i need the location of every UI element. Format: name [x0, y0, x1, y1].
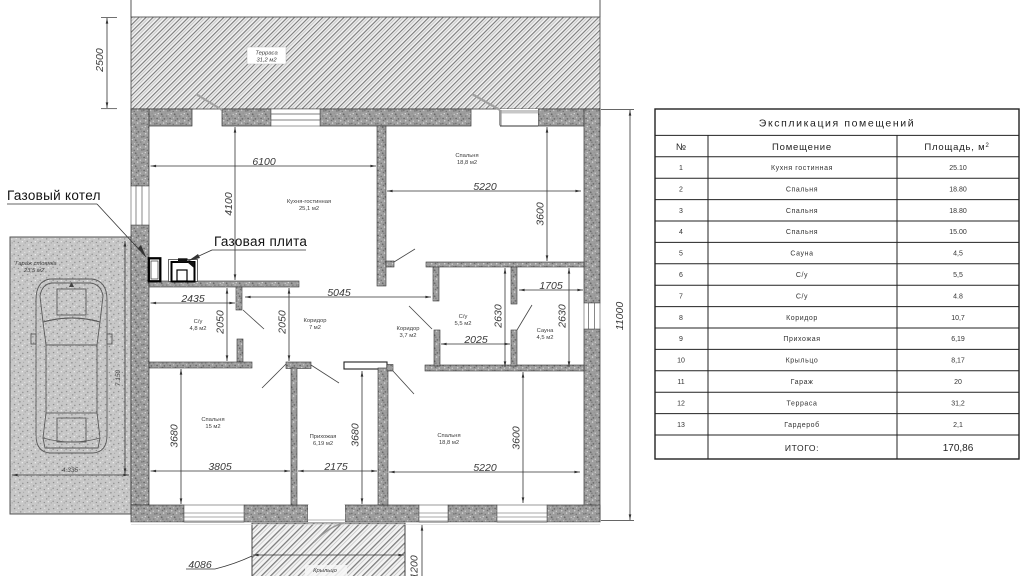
- svg-text:6,19: 6,19: [951, 336, 965, 343]
- svg-text:3: 3: [679, 208, 683, 215]
- svg-text:Гараж стоянка: Гараж стоянка: [15, 261, 57, 267]
- svg-text:2175: 2175: [323, 461, 348, 473]
- svg-text:5045: 5045: [327, 287, 351, 299]
- svg-text:3680: 3680: [169, 424, 181, 448]
- svg-text:Кухня гостинная: Кухня гостинная: [771, 165, 833, 172]
- svg-text:4: 4: [679, 229, 683, 236]
- svg-text:Спальня: Спальня: [201, 417, 224, 423]
- svg-text:Спальня: Спальня: [455, 153, 478, 159]
- svg-text:5220: 5220: [473, 181, 497, 193]
- svg-text:С/у: С/у: [194, 319, 203, 325]
- svg-text:1705: 1705: [539, 280, 563, 292]
- svg-text:25,1 м2: 25,1 м2: [299, 206, 319, 212]
- svg-text:Газовый котел: Газовый котел: [7, 188, 101, 203]
- svg-text:7.150: 7.150: [115, 369, 122, 386]
- svg-text:Площадь, м2: Площадь, м2: [924, 142, 989, 153]
- svg-text:6: 6: [679, 272, 683, 279]
- svg-text:4100: 4100: [223, 192, 235, 216]
- svg-text:3600: 3600: [535, 202, 547, 226]
- svg-text:8: 8: [679, 315, 683, 322]
- svg-text:7: 7: [679, 293, 683, 300]
- svg-text:Помещение: Помещение: [772, 142, 832, 153]
- svg-text:3600: 3600: [511, 426, 523, 450]
- svg-text:2435: 2435: [180, 293, 205, 305]
- svg-text:3805: 3805: [208, 461, 232, 473]
- svg-text:Терраса: Терраса: [255, 51, 278, 57]
- svg-text:3,7 м2: 3,7 м2: [400, 333, 417, 339]
- svg-text:12: 12: [677, 400, 685, 407]
- svg-text:Спальня: Спальня: [786, 208, 818, 215]
- svg-text:Газовая плита: Газовая плита: [214, 234, 307, 249]
- svg-text:№: №: [676, 142, 686, 153]
- svg-text:1: 1: [679, 165, 683, 172]
- svg-text:170,86: 170,86: [943, 443, 974, 454]
- svg-text:6,19 м2: 6,19 м2: [313, 441, 333, 447]
- svg-text:Спальня: Спальня: [786, 229, 818, 236]
- svg-text:7 м2: 7 м2: [309, 325, 321, 331]
- svg-text:31,2: 31,2: [951, 400, 965, 407]
- svg-text:31,2 м2: 31,2 м2: [256, 58, 277, 64]
- svg-text:18,8 м2: 18,8 м2: [457, 160, 477, 166]
- svg-text:11000: 11000: [614, 302, 626, 331]
- svg-text:Спальня: Спальня: [437, 433, 460, 439]
- svg-text:3680: 3680: [350, 423, 362, 447]
- svg-text:С/у: С/у: [796, 293, 808, 300]
- svg-text:Гардероб: Гардероб: [784, 421, 820, 429]
- svg-text:4,5: 4,5: [953, 251, 963, 258]
- svg-text:9: 9: [679, 336, 683, 343]
- svg-text:25.10: 25.10: [949, 165, 967, 172]
- svg-text:Крыльцо: Крыльцо: [313, 568, 338, 574]
- svg-text:11: 11: [677, 379, 684, 386]
- svg-text:2,1: 2,1: [953, 422, 963, 429]
- svg-text:2630: 2630: [557, 304, 569, 329]
- svg-text:Сауна: Сауна: [537, 328, 555, 334]
- svg-text:2025: 2025: [463, 334, 488, 346]
- svg-text:Сауна: Сауна: [790, 251, 813, 258]
- svg-text:4,5 м2: 4,5 м2: [537, 335, 554, 341]
- svg-text:10: 10: [677, 358, 685, 365]
- svg-text:23,5 м2: 23,5 м2: [23, 268, 45, 274]
- svg-text:5,5 м2: 5,5 м2: [455, 321, 472, 327]
- svg-text:18.80: 18.80: [949, 208, 967, 215]
- svg-text:Крыльцо: Крыльцо: [786, 358, 819, 365]
- svg-text:2500: 2500: [94, 48, 106, 73]
- svg-text:Прихожая: Прихожая: [310, 434, 337, 440]
- svg-text:Кухня-гостинная: Кухня-гостинная: [287, 199, 331, 205]
- svg-text:18.80: 18.80: [949, 186, 967, 193]
- svg-text:Коридор: Коридор: [786, 315, 818, 322]
- svg-text:Коридор: Коридор: [304, 318, 327, 324]
- svg-text:8,17: 8,17: [951, 358, 965, 365]
- svg-text:Гараж: Гараж: [791, 379, 814, 386]
- svg-text:10,7: 10,7: [951, 315, 965, 322]
- svg-text:2: 2: [679, 186, 683, 193]
- svg-text:5,5: 5,5: [953, 272, 963, 279]
- svg-text:С/у: С/у: [459, 314, 468, 320]
- svg-text:20: 20: [954, 379, 962, 386]
- svg-text:4.8: 4.8: [953, 293, 963, 300]
- svg-text:Прихожая: Прихожая: [783, 336, 820, 343]
- svg-text:13: 13: [677, 422, 685, 429]
- svg-text:18,8 м2: 18,8 м2: [439, 440, 459, 446]
- svg-text:1200: 1200: [409, 555, 421, 576]
- svg-text:ИТОГО:: ИТОГО:: [785, 443, 819, 453]
- svg-text:Терраса: Терраса: [786, 400, 817, 407]
- svg-text:5220: 5220: [473, 462, 497, 474]
- svg-text:4.335: 4.335: [62, 467, 79, 474]
- svg-text:15.00: 15.00: [949, 229, 967, 236]
- svg-text:2630: 2630: [493, 304, 505, 329]
- svg-text:Спальня: Спальня: [786, 186, 818, 193]
- svg-text:6100: 6100: [252, 156, 276, 168]
- svg-text:15 м2: 15 м2: [205, 424, 220, 430]
- svg-text:5: 5: [679, 251, 683, 258]
- svg-text:Коридор: Коридор: [397, 326, 420, 332]
- svg-text:С/у: С/у: [796, 272, 808, 279]
- svg-text:Экспликация помещений: Экспликация помещений: [759, 118, 915, 130]
- svg-text:2050: 2050: [277, 310, 289, 335]
- svg-text:2050: 2050: [215, 310, 227, 335]
- svg-text:4,8 м2: 4,8 м2: [190, 326, 207, 332]
